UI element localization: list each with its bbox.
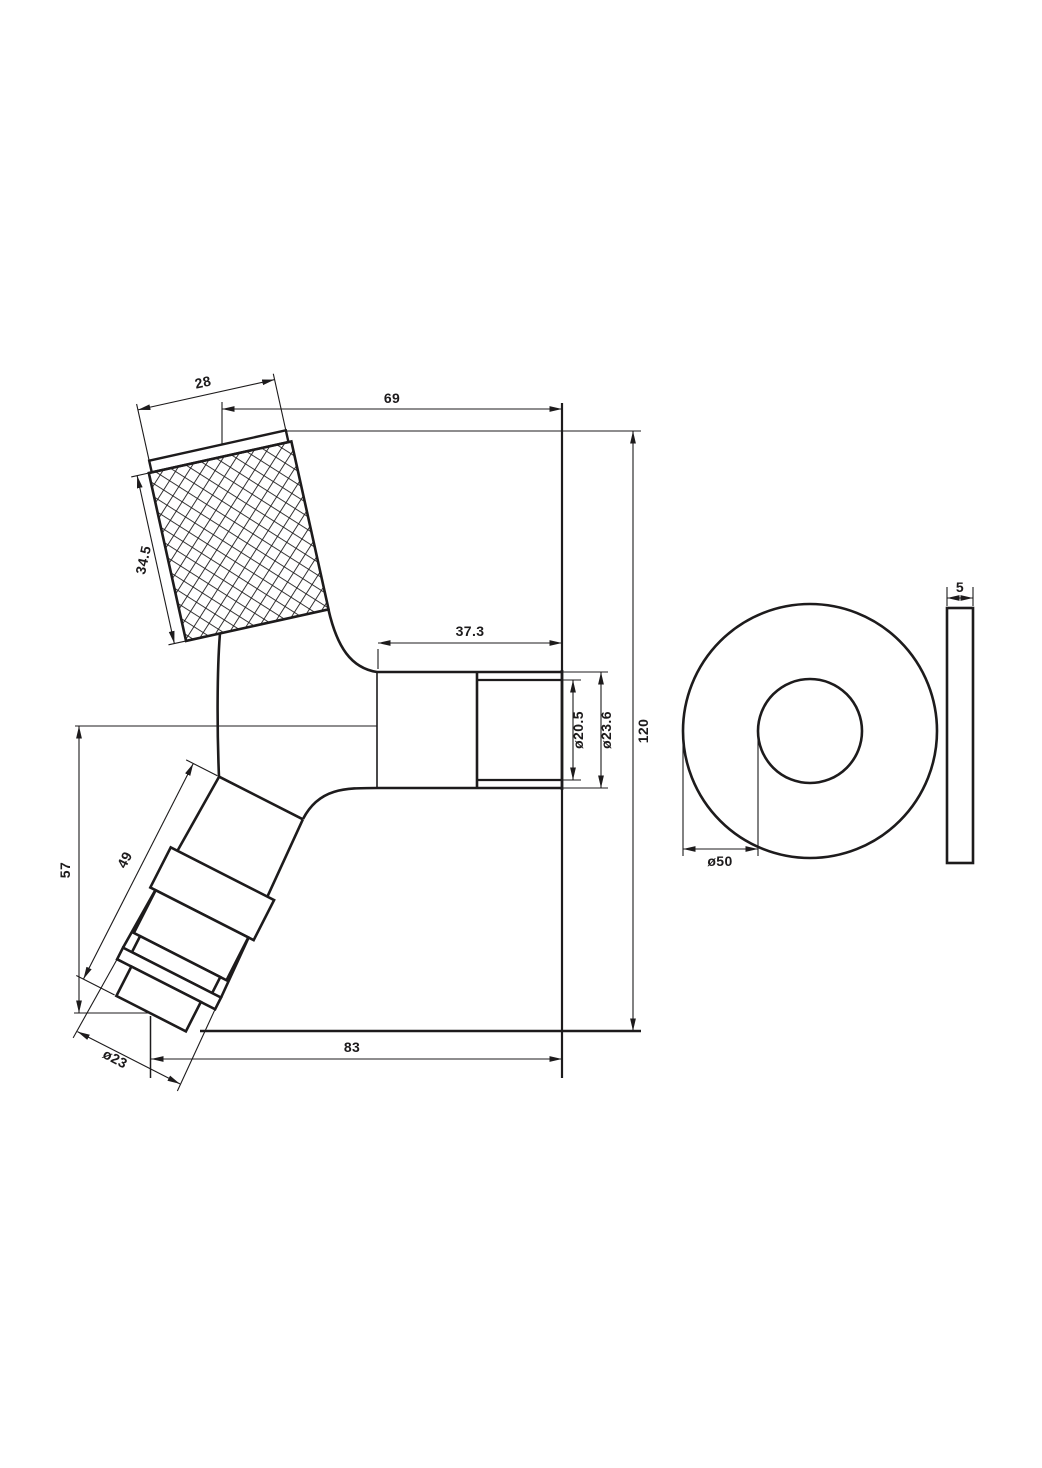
- label-tip-diameter: ø23: [100, 1046, 130, 1072]
- neck-left-edge: [218, 633, 220, 777]
- drawing-canvas: 28 34.5 69 37.3 ø20.5 ø23.6 120 57 49 ø2…: [0, 0, 1042, 1468]
- label-spout-reach: 69: [384, 390, 400, 406]
- washer-front-view: [683, 604, 937, 858]
- dim-50: [683, 733, 758, 856]
- label-thread-length: 37.3: [456, 623, 485, 639]
- label-tip-to-spout: 83: [344, 1039, 360, 1055]
- inlet-leg-group: [50, 760, 313, 1091]
- neck-right-fillet: [328, 609, 377, 672]
- thread-inner-lines: [477, 680, 562, 780]
- spout-bottom-fillet: [303, 788, 377, 819]
- body-outline: [218, 609, 562, 819]
- technical-drawing-svg: 28 34.5 69 37.3 ø20.5 ø23.6 120 57 49 ø2…: [0, 0, 1042, 1468]
- washer-side-view: [947, 587, 973, 863]
- label-spout-diameter: ø23.6: [598, 711, 614, 749]
- label-knob-width: 28: [193, 373, 212, 392]
- label-washer-thickness: 5: [956, 579, 964, 595]
- label-overall-height: 120: [635, 719, 651, 744]
- label-washer-diameter: ø50: [707, 853, 732, 869]
- label-leg-length: 49: [114, 849, 136, 871]
- washer-side-rect: [947, 608, 973, 863]
- dim-120: [286, 431, 641, 1031]
- leg-shoulder: [219, 777, 303, 820]
- knob-knurl: [149, 441, 329, 641]
- washer-outer-circle: [683, 604, 937, 858]
- tap-front-view: [50, 373, 641, 1091]
- label-axis-to-tip: 57: [57, 862, 73, 878]
- washer-inner-circle: [758, 679, 862, 783]
- label-knob-length: 34.5: [132, 544, 154, 576]
- dim-37-3: [378, 643, 562, 669]
- label-thread-diameter: ø20.5: [570, 711, 586, 749]
